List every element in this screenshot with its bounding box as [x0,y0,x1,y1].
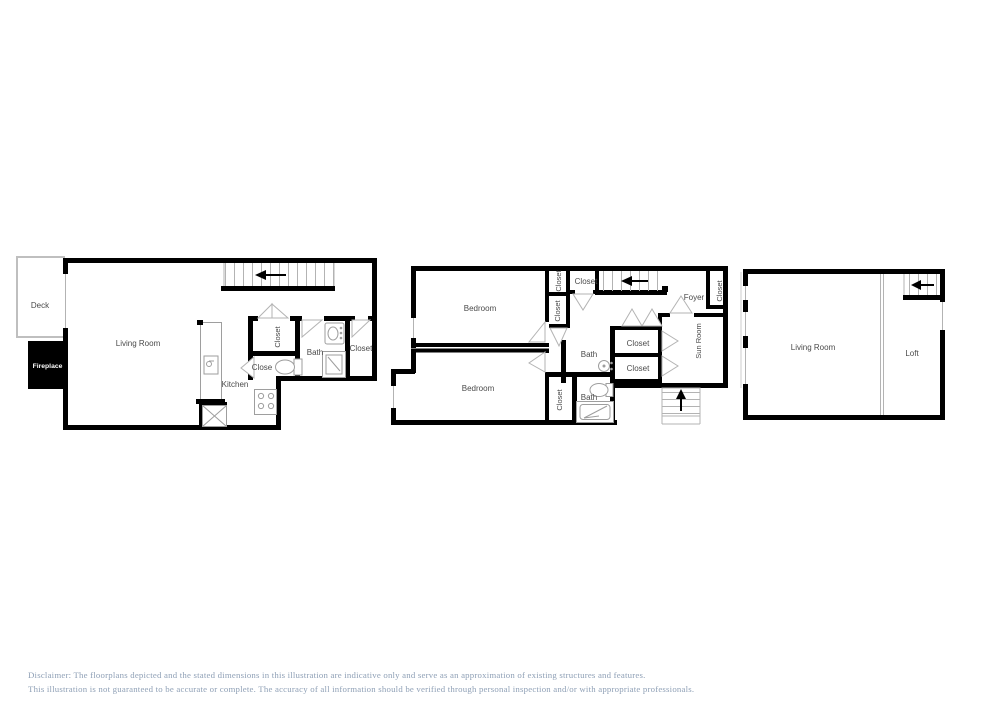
loft-label: Loft [905,349,919,358]
bedroom-top-label: Bedroom [464,304,497,313]
disclaimer-line1: Disclaimer: The floorplans depicted and … [28,669,694,683]
closet-right-label: Closet [350,344,373,353]
bath-label: Bath [307,348,323,357]
closet-foyer-label: Closet [715,279,724,301]
kitchen-island [201,323,222,403]
living-room-label: Living Room [116,339,161,348]
unit1-windows [63,268,68,334]
bedroom-bottom-label: Bedroom [462,384,495,393]
washer-box [199,402,227,428]
bath-bottom-label: Bath [581,393,597,402]
floorplan-drawing: Deck Fireplace Living Room Kitchen Close… [0,0,1000,707]
stove [255,390,277,415]
island-wall-tick [197,320,203,325]
deck-label: Deck [31,301,50,310]
closet-mid-bottom-label: Closet [627,364,650,373]
sun-room-label: Sun Room [694,323,703,358]
closet-top-label: Closet [575,277,598,286]
unit3-loft-level: Living Room Loft [743,269,945,420]
floorplan-page: Deck Fireplace Living Room Kitchen Close… [0,0,1000,707]
fireplace-label: Fireplace [33,363,63,370]
toilet [276,359,303,375]
unit3-windows [743,286,945,384]
unit1-first-floor: Deck Fireplace Living Room Kitchen Close… [17,257,377,430]
closet-b-label: Closet [553,299,562,321]
foyer-label: Foyer [684,293,705,302]
unit2-second-floor: Bedroom Bedroom Closet Closet Closet Foy… [391,266,741,425]
closet-hall-label: Closet [273,325,282,347]
disclaimer-line2: This illustration is not guaranteed to b… [28,683,694,697]
bath-sink [325,323,344,344]
disclaimer: Disclaimer: The floorplans depicted and … [28,669,694,696]
closet-mid-top-label: Closet [627,339,650,348]
closet-a-label: Closet [554,269,563,291]
deck-outline [17,257,64,337]
shower [323,352,346,378]
loft-living-room-label: Living Room [791,343,836,352]
closet-small-label: Close [252,363,273,372]
loft-divider [881,274,884,415]
closet-bedroom2-label: Closet [555,388,564,410]
kitchen-label: Kitchen [222,380,249,389]
bathtub [577,402,614,423]
bath-top-label: Bath [581,350,597,359]
